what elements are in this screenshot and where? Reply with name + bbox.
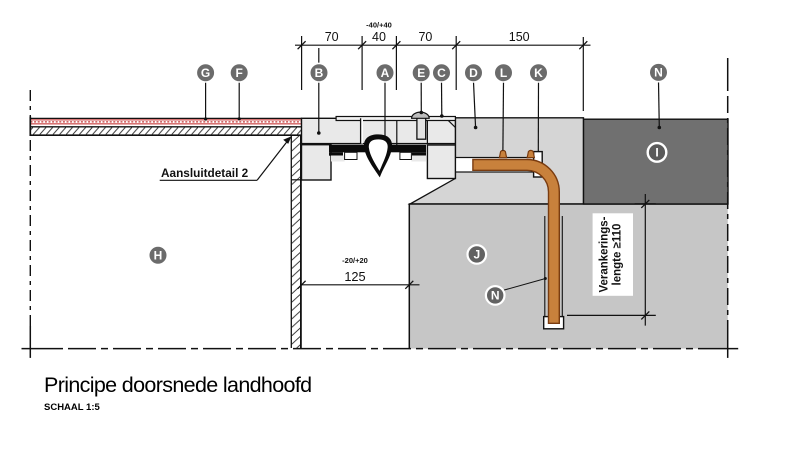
svg-text:SCHAAL 1:5: SCHAAL 1:5 [44, 402, 100, 413]
svg-text:K: K [534, 66, 543, 80]
svg-text:E: E [417, 66, 425, 80]
svg-text:Aansluitdetail 2: Aansluitdetail 2 [161, 166, 249, 180]
svg-text:Principe doorsnede landhoofd: Principe doorsnede landhoofd [44, 373, 311, 397]
svg-text:L: L [500, 66, 507, 80]
svg-text:-20/+20: -20/+20 [342, 256, 368, 265]
svg-text:70: 70 [325, 30, 339, 44]
svg-text:H: H [154, 248, 163, 262]
svg-text:Verankerings-: Verankerings- [598, 216, 610, 292]
svg-text:150: 150 [509, 30, 530, 44]
svg-text:C: C [437, 66, 446, 80]
svg-text:N: N [654, 66, 663, 80]
svg-text:40: 40 [372, 30, 386, 44]
svg-text:-40/+40: -40/+40 [366, 21, 392, 30]
svg-text:125: 125 [344, 269, 365, 284]
svg-text:I: I [655, 146, 658, 160]
svg-text:N: N [491, 289, 500, 303]
svg-text:B: B [315, 66, 324, 80]
svg-text:G: G [201, 66, 210, 80]
svg-text:70: 70 [418, 30, 432, 44]
svg-text:J: J [473, 248, 480, 262]
svg-text:D: D [469, 66, 478, 80]
svg-text:F: F [236, 66, 243, 80]
svg-text:A: A [381, 66, 390, 80]
svg-text:lengte ≥110: lengte ≥110 [611, 224, 623, 286]
